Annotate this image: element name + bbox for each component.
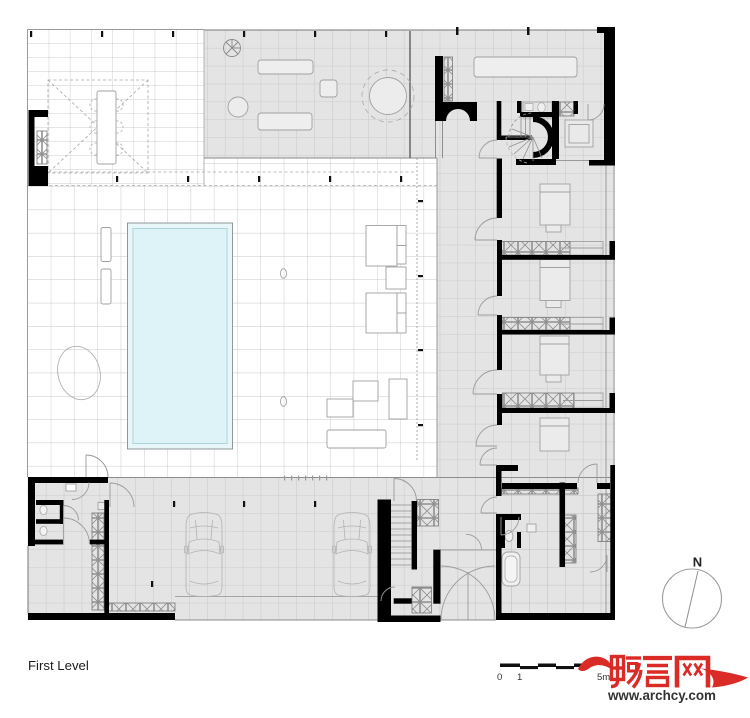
svg-text:N: N [693,555,702,570]
svg-text:0: 0 [497,672,502,683]
svg-text:1: 1 [517,672,522,683]
svg-text:First Level: First Level [28,658,89,673]
svg-text:5m: 5m [597,672,610,683]
svg-text:www.archcy.com: www.archcy.com [607,688,716,703]
